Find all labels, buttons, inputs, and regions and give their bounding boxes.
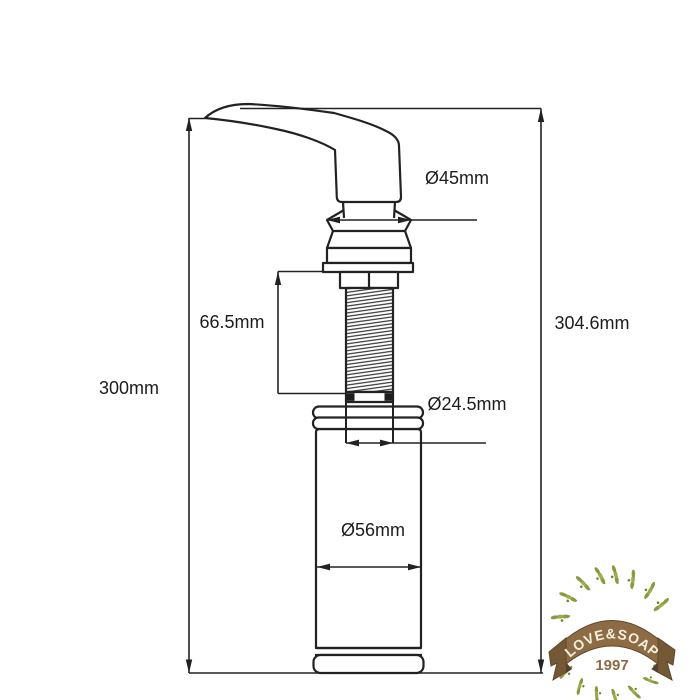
seal-washer-left-block — [347, 393, 355, 401]
dim-label-height-left: 300mm — [99, 379, 159, 397]
seal-washer-right-block — [385, 393, 393, 401]
brand-logo: LOVE&SOAP 1997 — [549, 564, 675, 700]
collar-taper — [327, 231, 411, 248]
dim-label-height-right: 304.6mm — [554, 314, 629, 332]
logo-year-text: 1997 — [595, 657, 628, 674]
collar-band — [327, 248, 411, 263]
dim-45mm-lines — [327, 217, 477, 224]
collar-base — [323, 263, 413, 272]
dim-label-bottle-diameter: Ø56mm — [341, 521, 405, 539]
bottle-cap-ring-bottom — [313, 418, 423, 430]
pump-head-spout — [205, 104, 401, 202]
dispenser-diagram: LOVE&SOAP 1997 — [0, 0, 700, 700]
dim-label-tube-diameter: Ø24.5mm — [427, 395, 506, 413]
pump-neck — [343, 202, 395, 218]
dim-300mm-lines — [186, 118, 205, 674]
dim-label-thread-length: 66.5mm — [199, 313, 264, 331]
technical-drawing-page: LOVE&SOAP 1997 Ø45mm 66.5mm 300mm 304.6m… — [0, 0, 700, 700]
threaded-shaft — [346, 288, 393, 392]
dim-label-head-diameter: Ø45mm — [425, 169, 489, 187]
soap-dispenser-outline — [205, 104, 424, 673]
bottle-base-band — [314, 655, 424, 673]
dim-66-5mm-lines — [275, 272, 346, 394]
